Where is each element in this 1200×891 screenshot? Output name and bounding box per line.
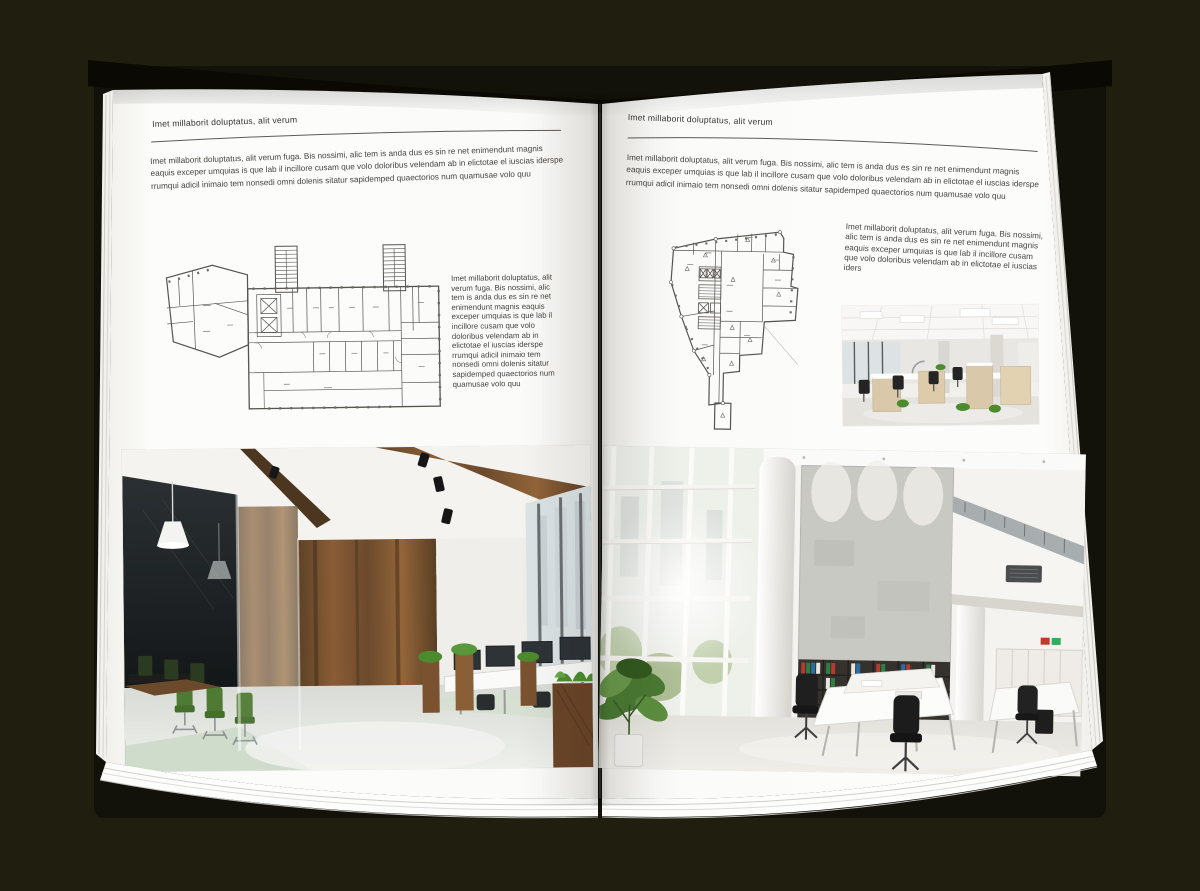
photo-small-ceiling [842,304,1038,340]
floor-plan-left [162,242,445,413]
right-page-intro: Imet millaborit doluptatus, alit verum f… [626,152,1043,204]
office-photo-small [842,304,1039,426]
waste-bin [1035,710,1053,734]
page-stack-left [96,90,113,762]
right-page-caption: Imet millaborit doluptatus, alit verum f… [843,222,1043,283]
floor-plan-right-interior-walls [671,231,798,404]
floor-plan-left-door-arcs [255,331,401,365]
floor-plan-right-core [698,267,721,329]
floor-plan-right-column-dots [667,229,781,406]
floor-plan-right-area-marks [683,236,800,418]
office-photo-right [598,446,1086,776]
floor-plan-left-stair-towers [275,245,406,293]
photo-right-concrete-wall [798,459,953,662]
right-header-rule [627,130,1041,156]
right-page-kicker: Imet millaborit doluptatus, alit verum [628,112,928,132]
brochure-mockup-screenshot: { "document": { "type": "open-brochure-m… [0,0,1200,891]
left-header-rule [150,126,564,145]
top-shade-right [602,74,1044,118]
left-page-caption: Imet millaborit doluptatus, alit verum f… [451,272,565,389]
photo-left-glass-partitions [235,492,301,751]
exit-sign [1052,638,1061,645]
office-photo-left [122,445,593,772]
floor-plan-left-dimension-marks [203,302,425,389]
left-page-kicker: Imet millaborit doluptatus, alit verum [152,110,452,129]
left-page-intro: Imet millaborit doluptatus, alit verum f… [150,142,567,193]
floor-plan-left-main-block [248,286,441,409]
first-aid-sign [1041,638,1050,645]
floor-plan-right [654,224,806,433]
book-top-cover-edge [88,60,1112,113]
